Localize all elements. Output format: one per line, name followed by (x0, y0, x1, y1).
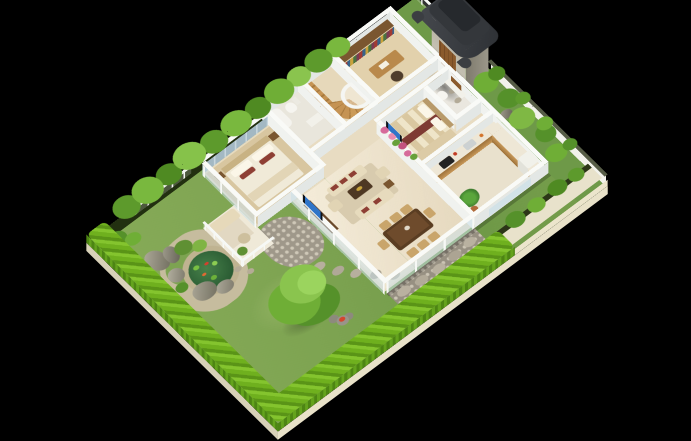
scene-viewport (0, 0, 691, 441)
floor-plan-render (92, 4, 596, 424)
